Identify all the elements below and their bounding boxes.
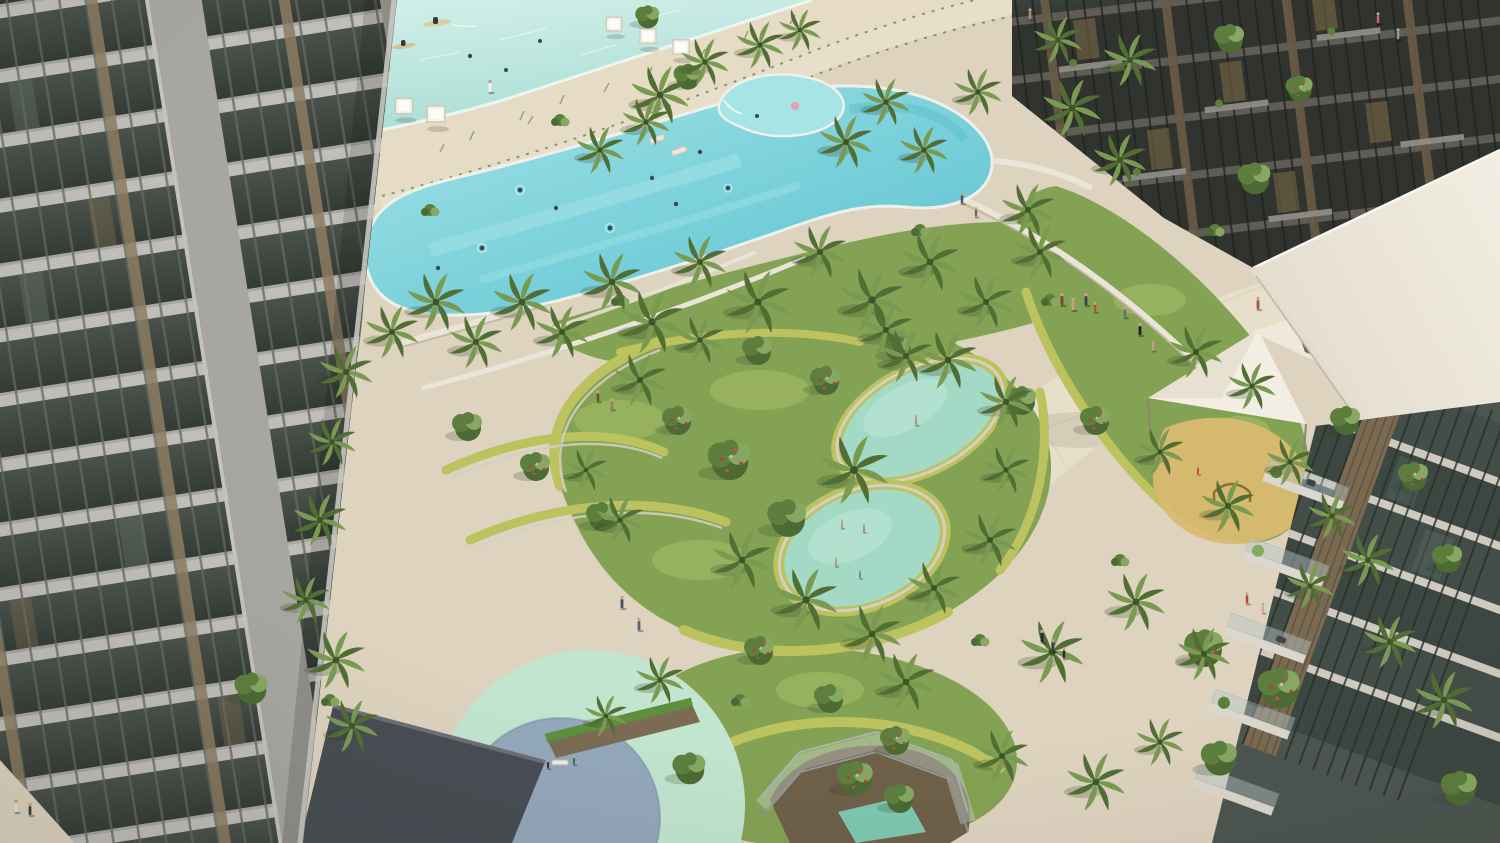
- scene-svg: Aerial rendering of a beachfront residen…: [0, 0, 1500, 843]
- lighting-overlay: [0, 0, 1500, 843]
- scene-aerial-rendering: Aerial rendering of a beachfront residen…: [0, 0, 1500, 843]
